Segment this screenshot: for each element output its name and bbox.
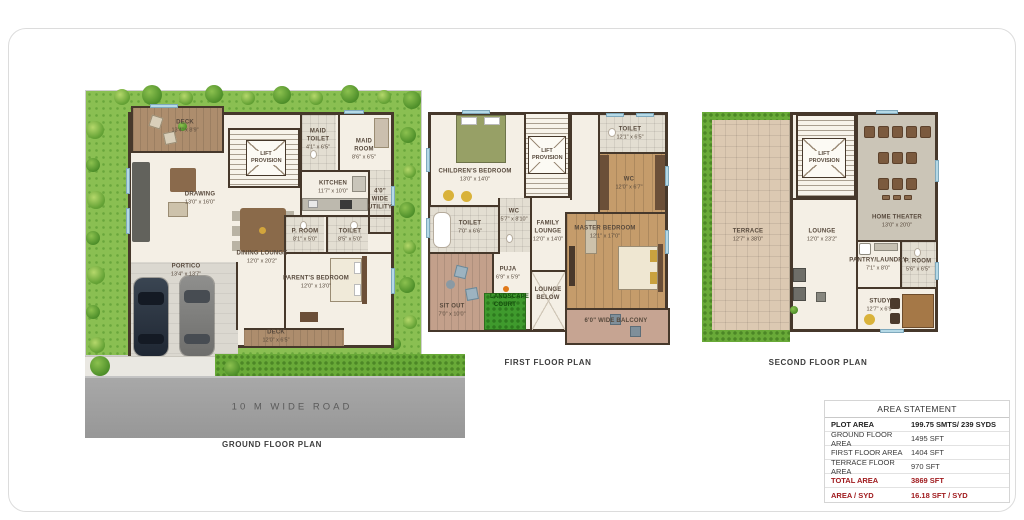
tree-icon xyxy=(403,241,416,254)
room-wc2 xyxy=(498,198,530,252)
tree-icon xyxy=(403,91,421,109)
room-label-balcony: 6'0" WIDE BALCONY xyxy=(584,318,647,326)
centerpiece xyxy=(259,227,266,234)
dresser xyxy=(300,312,318,322)
window xyxy=(391,268,395,294)
tree-icon xyxy=(341,85,359,103)
terrace-hedge-bottom xyxy=(702,330,790,342)
stool xyxy=(816,292,826,302)
desk-chair xyxy=(890,313,900,324)
tree-icon xyxy=(400,127,416,143)
terrace xyxy=(702,112,790,342)
wall xyxy=(856,112,858,332)
side-table xyxy=(446,280,455,289)
wall xyxy=(338,115,340,170)
room-label-family-lounge: FAMILY LOUNGE12'0" x 14'0" xyxy=(533,221,563,244)
chair xyxy=(465,287,479,301)
theater-seat xyxy=(906,126,917,138)
room-label: LIFT PROVISION xyxy=(250,151,282,164)
table-row: TERRACE FLOOR AREA970 SFT xyxy=(825,460,1009,474)
wall xyxy=(598,112,600,212)
theater-seat xyxy=(920,126,931,138)
room-label-sit-out: SIT OUT7'0" x 10'0" xyxy=(438,304,465,319)
window xyxy=(462,110,490,114)
windshield xyxy=(184,290,210,303)
chair xyxy=(232,211,240,221)
theater-seat xyxy=(878,178,889,190)
wall xyxy=(236,262,238,330)
room-label-childrens-bedroom: CHILDREN'S BEDROOM13'0" x 14'0" xyxy=(438,169,511,184)
window xyxy=(126,168,130,194)
fridge xyxy=(352,176,366,192)
room-label-p-room: P. ROOM8'1" x 5'0" xyxy=(292,229,319,244)
toilet-fixture xyxy=(608,128,616,137)
washing-machine xyxy=(859,243,871,255)
pantry-counter xyxy=(874,243,898,251)
room-label-toilet-top: TOILET12'1" x 6'5" xyxy=(616,127,643,142)
ottoman xyxy=(904,195,912,200)
tree-icon xyxy=(205,85,223,103)
room-label-drawing: DRAWING13'0" x 16'0" xyxy=(185,192,215,207)
tree-icon xyxy=(89,337,105,353)
terrace-hedge-top xyxy=(702,112,790,120)
tree-icon xyxy=(86,121,104,139)
area-statement-table: AREA STATEMENT PLOT AREA199.75 SMTS/ 239… xyxy=(824,400,1010,503)
tree-icon xyxy=(86,305,100,319)
wardrobe xyxy=(655,155,665,210)
room-deck-bottom xyxy=(244,328,344,346)
window xyxy=(426,218,430,238)
window xyxy=(126,208,130,234)
tree-icon xyxy=(377,90,391,104)
room-label-utility: 4'0" WIDE UTILITY xyxy=(368,188,392,211)
theater-seat xyxy=(864,126,875,138)
room-label-portico: PORTICO13'4" x 13'7" xyxy=(171,264,201,279)
room-label-p-room2: P. ROOM5'6" x 6'5" xyxy=(905,259,932,274)
floorplan-sheet: LIFT PROVISION xyxy=(0,0,1024,520)
theater-seat xyxy=(892,178,903,190)
wall xyxy=(570,112,572,200)
bathtub xyxy=(433,212,451,248)
pillow xyxy=(354,262,361,274)
first-floor-caption: FIRST FLOOR PLAN xyxy=(505,358,592,367)
road-label: 10 M WIDE ROAD xyxy=(232,402,353,413)
tree-icon xyxy=(87,266,105,284)
wall xyxy=(284,215,392,217)
window xyxy=(665,166,669,186)
pillow xyxy=(650,250,657,262)
lift-shaft: LIFT PROVISION xyxy=(246,140,286,176)
chair xyxy=(232,241,240,251)
room-label-wc-left: WC5'7" x 8'10" xyxy=(500,209,527,224)
tree-icon xyxy=(399,202,415,218)
tree-icon xyxy=(87,191,105,209)
room-label-toilet-left: TOILET7'0" x 6'6" xyxy=(458,221,482,236)
window xyxy=(150,104,178,108)
pillow xyxy=(461,117,477,125)
room-label-landscape-court: LANDSCAPE COURT xyxy=(490,294,520,310)
bush-icon xyxy=(90,356,110,376)
plant-icon xyxy=(790,306,798,314)
wall xyxy=(565,212,567,308)
wall xyxy=(565,212,668,214)
area-statement-title: AREA STATEMENT xyxy=(825,401,1009,418)
rear-window xyxy=(138,334,164,344)
wall xyxy=(524,112,526,205)
room-label-home-theater: HOME THEATER13'0" x 20'0" xyxy=(872,215,922,230)
tree-icon xyxy=(86,231,100,245)
wall xyxy=(498,198,500,252)
tree-icon xyxy=(403,165,416,178)
bush-icon xyxy=(224,360,240,376)
room-label-deck: DECK13'4" x 8'9" xyxy=(171,120,198,135)
car-gray xyxy=(180,276,214,356)
diya xyxy=(503,286,509,292)
tree-icon xyxy=(273,86,291,104)
theater-ottoman-row xyxy=(860,195,934,200)
toilet-fixture xyxy=(914,248,921,257)
room-label-dining: DINING LOUNGE12'0" x 20'2" xyxy=(237,251,288,266)
pillow xyxy=(354,284,361,296)
beanbag-icon xyxy=(443,190,454,201)
tree-icon xyxy=(309,91,323,105)
room-label-maid-toilet: MAID TOILET4'1" x 6'5" xyxy=(303,129,333,152)
room-label-lounge-below: LOUNGE BELOW xyxy=(533,287,563,303)
pillow xyxy=(484,117,500,125)
table-row: AREA / SYD16.18 SFT / SYD xyxy=(825,488,1009,502)
room-label-maid-room: MAID ROOM8'6" x 6'5" xyxy=(349,139,379,162)
room-label-puja: PUJA6'9" x 5'9" xyxy=(496,267,520,282)
theater-seat-row xyxy=(860,126,934,138)
wall xyxy=(284,215,286,330)
lift-shaft: LIFT PROVISION xyxy=(528,136,566,174)
room-label-study: STUDY12'7" x 6'9" xyxy=(866,299,893,314)
theater-seat xyxy=(878,152,889,164)
room-label-lounge: LOUNGE12'0" x 23'2" xyxy=(807,229,837,244)
wall xyxy=(598,152,668,154)
wall xyxy=(326,215,328,252)
kitchen-sink xyxy=(308,200,318,208)
wall xyxy=(284,252,392,254)
room-label-master-bedroom: MASTER BEDROOM12'1" x 17'0" xyxy=(574,226,635,241)
sofa xyxy=(132,162,150,242)
wall xyxy=(790,198,856,200)
second-floor-caption: SECOND FLOOR PLAN xyxy=(769,358,868,367)
tv-console xyxy=(569,246,575,286)
window xyxy=(344,110,364,114)
headboard xyxy=(658,244,663,292)
ottoman xyxy=(882,195,890,200)
armchair xyxy=(793,268,806,282)
windshield xyxy=(138,292,164,305)
room-label-toilet: TOILET8'5" x 5'0" xyxy=(338,229,362,244)
pillow xyxy=(650,272,657,284)
terrace-hedge-left xyxy=(702,112,712,342)
tree-icon xyxy=(114,89,130,105)
window xyxy=(636,113,654,117)
stove xyxy=(340,200,352,209)
theater-seat xyxy=(892,152,903,164)
theater-seat xyxy=(906,178,917,190)
room-label-terrace: TERRACE12'7" x 38'0" xyxy=(733,229,763,244)
armchair xyxy=(793,287,806,301)
theater-seat xyxy=(892,126,903,138)
room-label-wc-top: WC12'0" x 6'7" xyxy=(615,177,642,192)
ground-floor-caption: GROUND FLOOR PLAN xyxy=(222,440,322,449)
window xyxy=(935,160,939,182)
toilet-fixture xyxy=(506,234,513,243)
tree-icon xyxy=(241,91,255,105)
car-dark xyxy=(134,278,168,356)
room-label-kitchen: KITCHEN11'7" x 10'0" xyxy=(318,181,348,196)
chair xyxy=(630,326,641,337)
hedge-strip xyxy=(215,354,465,376)
window xyxy=(880,329,904,333)
theater-seat-row xyxy=(860,152,934,164)
room-label-deck-bottom: DECK12'0" x 6'5" xyxy=(262,330,289,345)
window xyxy=(935,262,939,280)
room-label-pantry: PANTRY/LAUNDRY7'1" x 8'0" xyxy=(849,258,907,273)
window xyxy=(426,148,430,172)
headboard xyxy=(362,256,367,304)
beanbag-icon xyxy=(461,191,472,202)
window xyxy=(876,110,898,114)
tree-icon xyxy=(403,315,417,329)
table-row: GROUND FLOOR AREA1495 SFT xyxy=(825,432,1009,446)
wall xyxy=(856,287,938,289)
rear-window xyxy=(184,334,210,344)
beanbag-icon xyxy=(864,314,875,325)
tree-icon xyxy=(399,277,415,293)
tree-icon xyxy=(142,85,162,105)
coffee-table xyxy=(170,168,196,192)
wardrobe xyxy=(599,155,609,210)
window xyxy=(665,230,669,254)
table-row: TOTAL AREA3869 SFT xyxy=(825,474,1009,488)
wall xyxy=(368,232,392,234)
theater-seat-row xyxy=(860,178,934,190)
lift-shaft: LIFT PROVISION xyxy=(802,138,846,178)
ottoman xyxy=(893,195,901,200)
chair xyxy=(232,226,240,236)
tree-icon xyxy=(179,91,193,105)
wall xyxy=(530,270,567,272)
room-label-parents-bedroom: PARENT'S BEDROOM12'0" x 13'0" xyxy=(283,276,349,291)
theater-seat xyxy=(878,126,889,138)
window xyxy=(606,113,624,117)
theater-seat xyxy=(906,152,917,164)
study-desk xyxy=(902,294,934,328)
tree-icon xyxy=(86,158,100,172)
